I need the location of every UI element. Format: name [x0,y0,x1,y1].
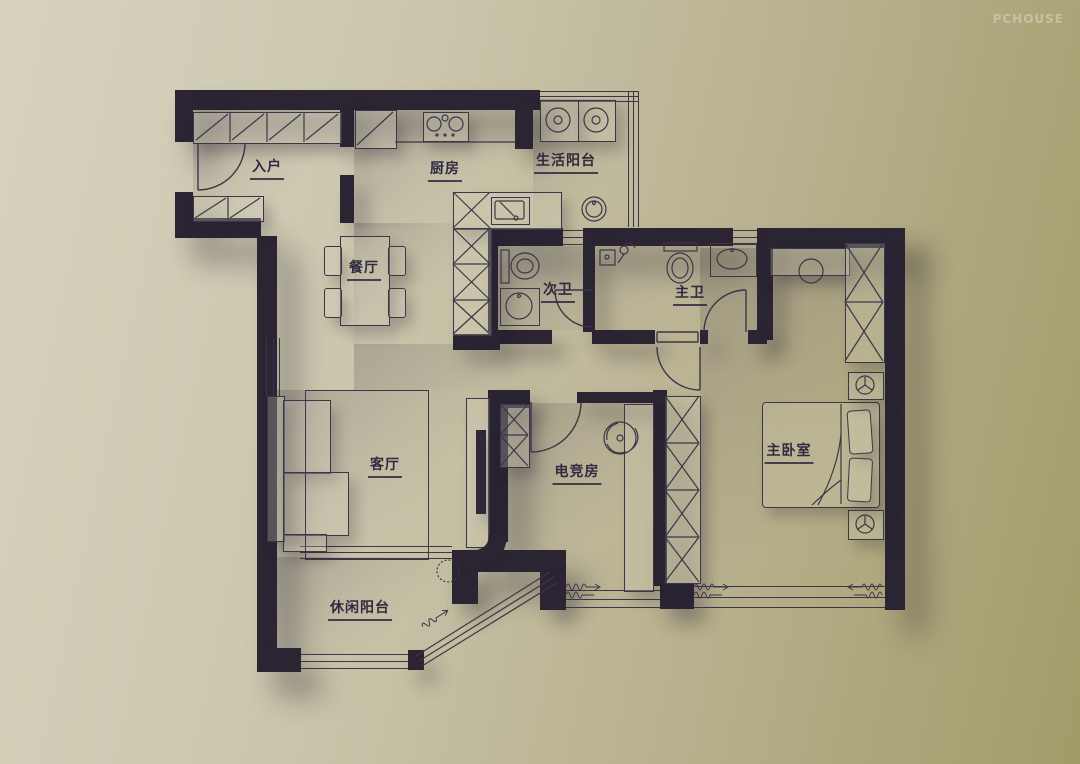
bedroom-wardrobe-ne [845,243,885,363]
wall-center-ledge [452,550,566,572]
entry-closet [193,112,342,144]
room-label-dining: 餐厅 [347,257,381,281]
service-balcony-window-right [628,91,639,227]
kitchen-sink-icon [491,197,530,225]
dining-chair [388,288,406,318]
room-label-service-balcony: 生活阳台 [534,150,598,174]
kitchen-tall-cabinet [453,228,492,336]
master-bath-toilet-icon [664,243,697,283]
wall-entry-kitchen-pillar-a [340,105,354,147]
nightstand [848,510,884,540]
tv-screen [476,430,486,514]
gaming-desk [624,404,654,592]
gaming-door-arc [531,402,581,452]
living-rug [305,390,429,560]
bedroom-door-arc [657,332,700,390]
room-label-gaming: 电竞房 [553,461,602,485]
gaming-cabinet [500,404,530,468]
bedroom-window [694,586,885,608]
shower-icon [600,243,635,265]
bedroom-dresser [770,248,850,276]
bath-top-window-a [563,230,583,245]
wall-center-leg-left [452,572,478,604]
wall-bath-bottom-c [700,330,708,344]
dining-chair [388,246,406,276]
room-label-guest-bath: 次卫 [541,279,575,303]
floor-plan-canvas: 入户 厨房 生活阳台 餐厅 次卫 主卫 客厅 电竞房 主卧室 休闲阳台 PCHO… [0,0,1080,764]
guest-bath-vanity [500,288,540,326]
pillow [846,409,873,455]
wall-cabinet-foot [453,334,500,350]
dining-table [340,236,390,326]
shoe-cabinet [193,196,264,222]
room-label-master-bath: 主卫 [673,282,707,306]
bedroom-wardrobe-west [665,396,701,584]
hall-shade [354,344,653,390]
pillow [847,457,873,502]
entry-door-arc [198,143,245,190]
guest-bath-toilet-icon [501,250,539,283]
wall-center-leg-right [540,572,566,610]
master-bath-vanity [710,243,757,277]
round-sink-icon [582,197,606,221]
room-label-kitchen: 厨房 [428,158,462,182]
dryer-machine-icon [578,100,616,142]
living-west-window [266,338,280,396]
master-bath-door-arc [704,290,746,332]
washing-machine-icon [540,100,579,142]
wall-window-corner-block [660,583,694,609]
wall-corner-sw [257,648,301,672]
balcony-diagonal-window [416,572,558,666]
wall-bath-divider [583,240,595,332]
wall-bath-bottom-d [748,330,767,344]
leisure-balcony-window-bottom [301,654,408,669]
wall-kitchen-balcony-pillar [515,105,533,149]
room-label-living: 客厅 [368,454,402,478]
room-label-master-bedroom: 主卧室 [765,440,814,464]
nightstand [848,372,884,400]
wall-bath-bottom-b [592,330,655,344]
wall-right-exterior [885,228,905,610]
wall-top [175,90,540,110]
dining-chair [324,288,342,318]
wall-entry-kitchen-pillar-b [340,175,354,223]
wall-bath-top-a [488,228,563,246]
wall-left-upper [175,90,193,142]
wall-gaming-top-b [577,392,665,403]
fridge-icon [355,110,397,149]
dining-chair [324,246,342,276]
stove-icon [423,112,469,142]
pchouse-watermark: PCHOUSE [993,12,1064,26]
gaming-window [566,590,660,608]
room-label-leisure-balcony: 休闲阳台 [328,597,392,621]
wall-diagonal-end-block [408,650,424,670]
room-label-entry: 入户 [250,156,284,180]
